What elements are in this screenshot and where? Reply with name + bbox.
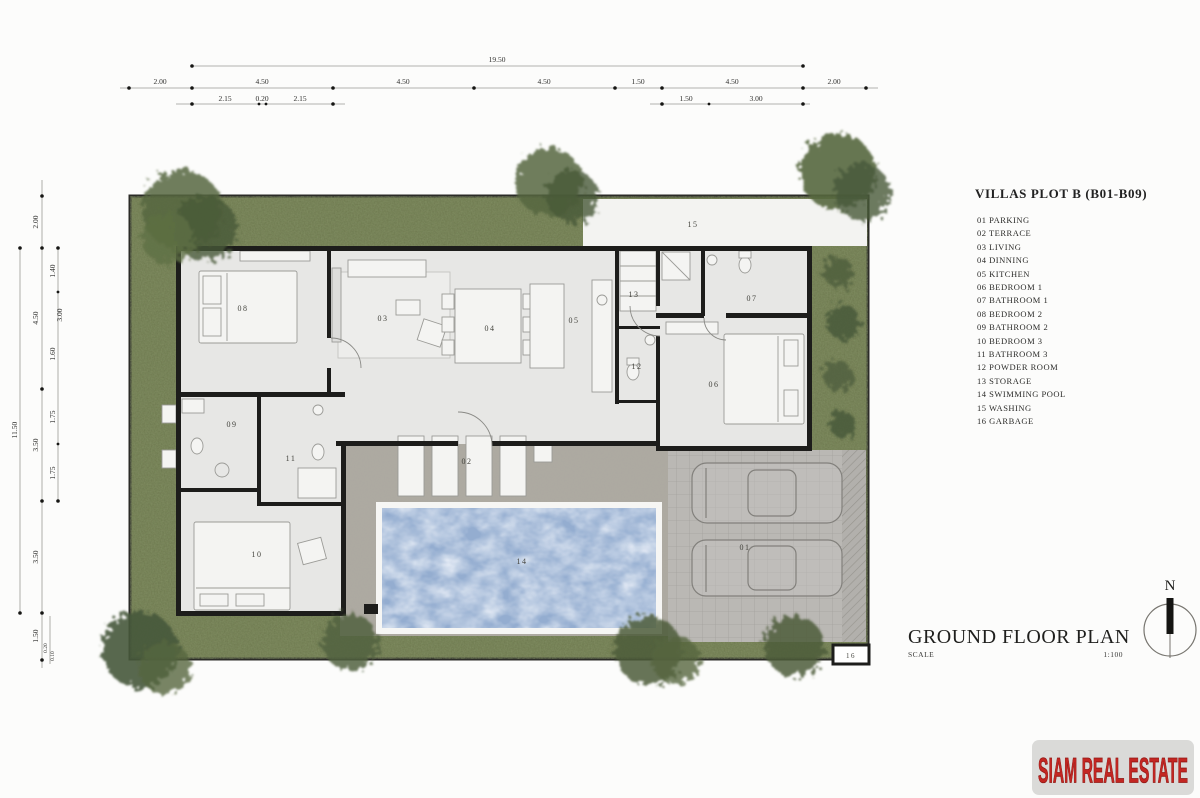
room-label-parking: 01 <box>740 543 751 552</box>
watermark-logo: SIAM REAL ESTATE <box>1034 742 1192 794</box>
legend-title: VILLAS PLOT B (B01-B09) <box>975 186 1200 202</box>
legend-list: 01 PARKING 02 TERRACE 03 LIVING 04 DINNI… <box>975 214 1200 429</box>
scale-value: 1:100 <box>1103 650 1123 659</box>
svg-text:4.50: 4.50 <box>725 77 738 86</box>
svg-text:4.50: 4.50 <box>31 311 40 324</box>
svg-text:0.10: 0.10 <box>50 651 56 661</box>
room-label-bathroom3: 11 <box>286 454 297 463</box>
legend-item: 08 BEDROOM 2 <box>977 308 1200 321</box>
room-label-washing: 15 <box>688 220 699 229</box>
svg-text:1.60: 1.60 <box>48 347 57 360</box>
dimensions-top <box>120 66 878 104</box>
scale-label: SCALE <box>908 650 934 659</box>
svg-text:3.50: 3.50 <box>31 550 40 563</box>
tree <box>322 614 378 670</box>
svg-text:4.50: 4.50 <box>537 77 550 86</box>
north-arrow-icon: N <box>1132 574 1200 678</box>
legend-item: 09 BATHROOM 2 <box>977 321 1200 334</box>
room-label-dinning: 04 <box>485 324 496 333</box>
svg-text:3.00: 3.00 <box>55 308 64 321</box>
svg-text:2.15: 2.15 <box>218 94 231 103</box>
legend-item: 16 GARBAGE <box>977 415 1200 428</box>
svg-text:4.50: 4.50 <box>255 77 268 86</box>
swimming-pool <box>376 502 662 634</box>
room-label-garbage: 16 <box>846 652 856 660</box>
svg-text:3.00: 3.00 <box>749 94 762 103</box>
car <box>692 540 842 596</box>
legend-item: 10 BEDROOM 3 <box>977 335 1200 348</box>
svg-text:2.00: 2.00 <box>827 77 840 86</box>
room-label-powder: 12 <box>632 362 643 371</box>
legend-item: 14 SWIMMING POOL <box>977 388 1200 401</box>
svg-text:2.15: 2.15 <box>293 94 306 103</box>
title-block: GROUND FLOOR PLAN SCALE 1:100 <box>908 626 1123 659</box>
legend-item: 05 KITCHEN <box>977 268 1200 281</box>
room-label-pool: 14 <box>517 557 528 566</box>
room-label-bathroom1: 07 <box>747 294 758 303</box>
room-label-terrace: 02 <box>462 457 473 466</box>
room-label-bedroom3: 10 <box>252 550 263 559</box>
svg-text:0.20: 0.20 <box>255 94 268 103</box>
legend-item: 07 BATHROOM 1 <box>977 294 1200 307</box>
svg-text:1.50: 1.50 <box>631 77 644 86</box>
legend-item: 06 BEDROOM 1 <box>977 281 1200 294</box>
watermark-badge: SIAM REAL ESTATE <box>1032 740 1194 795</box>
room-label-kitchen: 05 <box>569 316 580 325</box>
svg-text:11.50: 11.50 <box>10 421 19 438</box>
tree <box>764 616 824 676</box>
legend-item: 15 WASHING <box>977 402 1200 415</box>
svg-text:1.75: 1.75 <box>48 466 57 479</box>
north-compass: N <box>1132 574 1200 683</box>
floor-plan-sheet: 01 02 03 04 05 06 07 08 09 10 11 12 13 1… <box>0 0 1200 798</box>
legend: VILLAS PLOT B (B01-B09) 01 PARKING 02 TE… <box>975 186 1200 429</box>
dimension-text-left: 11.50 2.00 4.50 3.50 3.50 1.50 1.40 3.00… <box>10 215 64 661</box>
svg-text:4.50: 4.50 <box>396 77 409 86</box>
svg-text:2.00: 2.00 <box>153 77 166 86</box>
room-label-living: 03 <box>378 314 389 323</box>
legend-item: 11 BATHROOM 3 <box>977 348 1200 361</box>
svg-text:1.50: 1.50 <box>679 94 692 103</box>
svg-text:19.50: 19.50 <box>489 55 506 64</box>
tree <box>142 170 237 264</box>
legend-item: 03 LIVING <box>977 241 1200 254</box>
svg-text:0.20: 0.20 <box>43 643 49 653</box>
svg-text:1.50: 1.50 <box>31 629 40 642</box>
dimension-text-top: 19.50 2.00 4.50 4.50 4.50 1.50 4.50 2.00… <box>153 55 840 103</box>
legend-item: 12 POWDER ROOM <box>977 361 1200 374</box>
north-label: N <box>1165 578 1176 594</box>
legend-item: 01 PARKING <box>977 214 1200 227</box>
svg-text:3.50: 3.50 <box>31 438 40 451</box>
watermark-text: SIAM REAL ESTATE <box>1038 752 1188 790</box>
svg-text:2.00: 2.00 <box>31 215 40 228</box>
legend-item: 02 TERRACE <box>977 227 1200 240</box>
room-label-bathroom2: 09 <box>227 420 238 429</box>
room-label-bedroom2: 08 <box>238 304 249 313</box>
legend-item: 04 DINNING <box>977 254 1200 267</box>
legend-item: 13 STORAGE <box>977 375 1200 388</box>
room-label-bedroom1: 06 <box>709 380 720 389</box>
svg-text:1.75: 1.75 <box>48 410 57 423</box>
dimension-ticks-left <box>18 194 60 662</box>
page-title: GROUND FLOOR PLAN <box>908 626 1123 649</box>
room-label-storage: 13 <box>629 290 640 299</box>
car <box>692 463 842 523</box>
svg-text:1.40: 1.40 <box>48 264 57 277</box>
